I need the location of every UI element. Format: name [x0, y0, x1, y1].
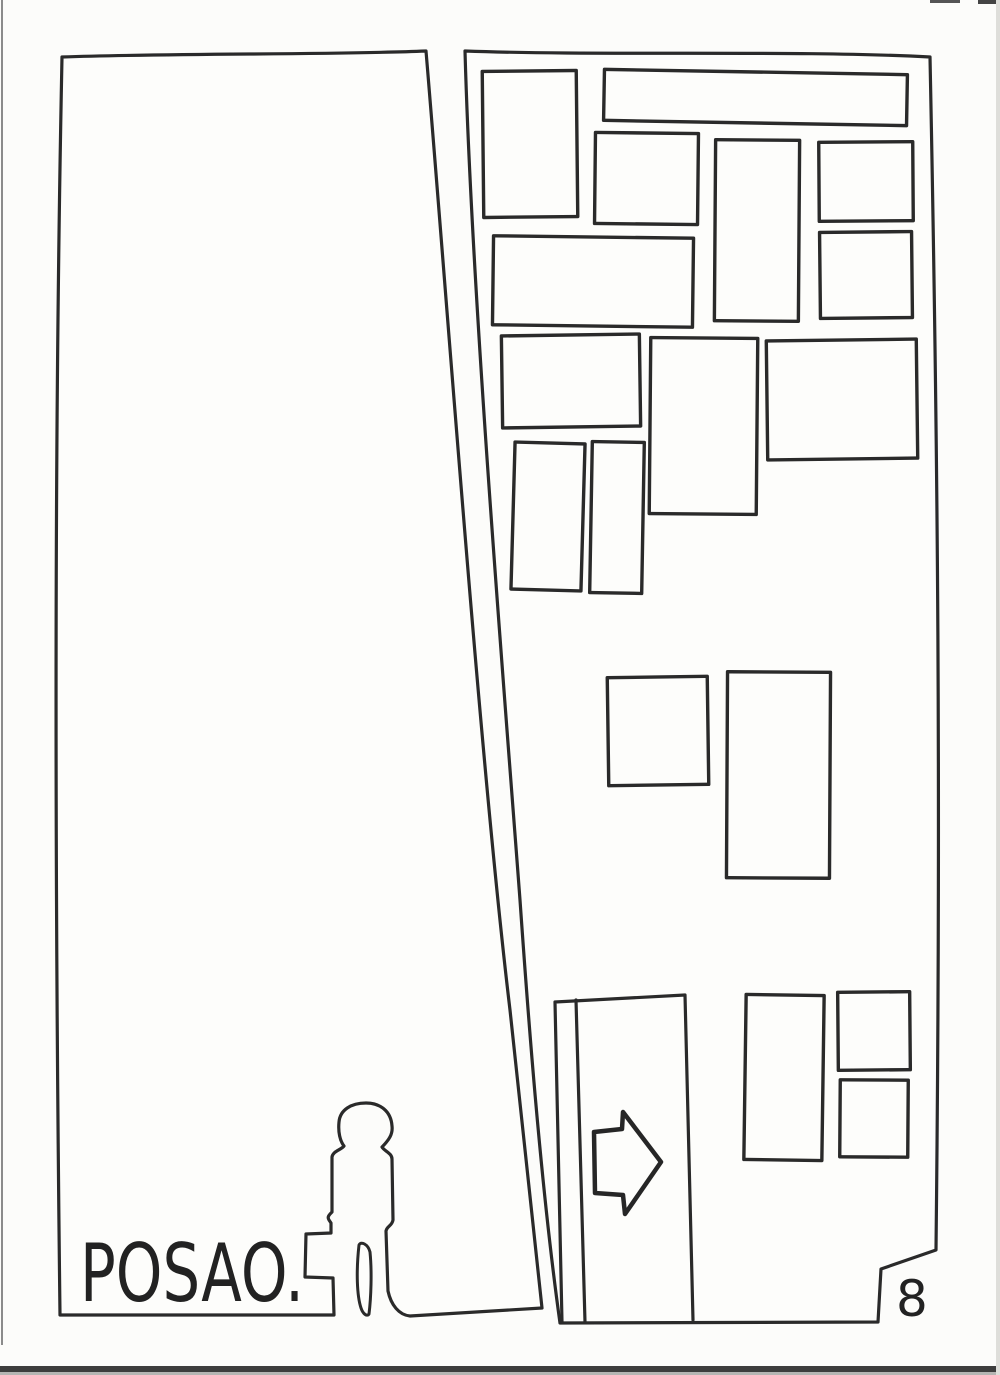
person-far-leg — [357, 1243, 371, 1315]
sketch-canvas: POSAO. 8 — [0, 0, 1000, 1375]
scan-mark-top-right-1 — [930, 0, 960, 3]
left-panel-with-person-silhouette — [56, 51, 542, 1316]
scanned-sketch-page: POSAO. 8 — [0, 0, 1000, 1375]
building-panel-outline — [465, 51, 938, 1323]
panel-caption: POSAO. — [80, 1227, 304, 1320]
scan-edge-bottom — [0, 1366, 1000, 1372]
scan-edge-right — [996, 0, 1000, 1375]
page-number: 8 — [896, 1270, 928, 1328]
